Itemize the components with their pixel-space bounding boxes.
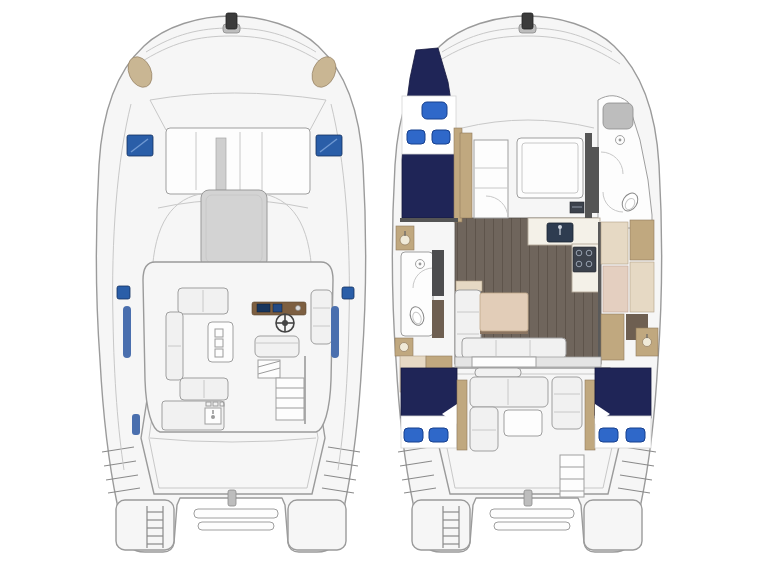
helm-seat xyxy=(255,336,299,357)
shower-bench xyxy=(603,103,633,129)
vanity-sink-icon xyxy=(395,338,413,356)
berth-pillow-icon xyxy=(626,428,645,442)
compass-icon xyxy=(296,306,301,311)
instrument-screen xyxy=(273,304,282,312)
wet-bar xyxy=(162,401,224,430)
berth-pillow-icon xyxy=(432,130,450,144)
deck-hatch-icon xyxy=(316,135,342,156)
deck-hatch-icon xyxy=(117,286,130,299)
flybridge-table xyxy=(208,322,233,362)
deck-plan-drawing xyxy=(0,0,768,576)
cockpit-steps xyxy=(560,455,584,497)
cockpit-table xyxy=(504,410,542,436)
upper-deck-plan xyxy=(96,13,365,552)
wardrobe-dark xyxy=(592,147,599,213)
wardrobe-dark xyxy=(585,133,592,218)
forward-cabin-bed xyxy=(517,138,583,198)
flybridge-side-lounger xyxy=(311,290,332,344)
galley-sink-icon xyxy=(547,223,573,242)
berth-headboard xyxy=(457,380,467,450)
aft-berth-port xyxy=(401,368,457,448)
aft-berth-starboard xyxy=(585,368,651,450)
wardrobe-dark xyxy=(432,250,444,296)
bulkhead xyxy=(400,218,458,222)
berth-pillow-icon xyxy=(404,428,423,442)
galley-stove-icon xyxy=(573,247,596,272)
wardrobe-dark xyxy=(432,300,444,338)
deck-hatch-icon xyxy=(127,135,153,156)
side-window xyxy=(132,414,140,435)
side-window xyxy=(331,306,339,358)
chartplotter-screen xyxy=(257,304,270,312)
berth-headboard xyxy=(585,380,595,450)
hull-inner-wall xyxy=(598,222,601,362)
sliding-door xyxy=(472,357,536,367)
berth-pillow-icon xyxy=(429,428,448,442)
cockpit-side-seat xyxy=(552,377,582,429)
steering-wheel-icon xyxy=(276,314,294,332)
cabin-door-slot xyxy=(216,138,226,190)
side-window xyxy=(123,306,131,358)
main-deck-plan xyxy=(392,13,661,552)
berth-pillow-icon xyxy=(422,102,447,119)
port-bathroom xyxy=(401,252,433,336)
helm-console xyxy=(252,302,306,315)
dinette-table xyxy=(480,293,528,331)
catamaran-deck-plans xyxy=(0,0,768,576)
vanity-sink-icon xyxy=(396,226,414,250)
coachroof-sunpad xyxy=(201,190,267,268)
deck-hatch-icon xyxy=(342,287,354,299)
berth-pillow-icon xyxy=(407,130,425,144)
berth-pillow-icon xyxy=(599,428,618,442)
vanity-sink-icon xyxy=(636,328,658,356)
cabin-windshield xyxy=(166,128,310,194)
